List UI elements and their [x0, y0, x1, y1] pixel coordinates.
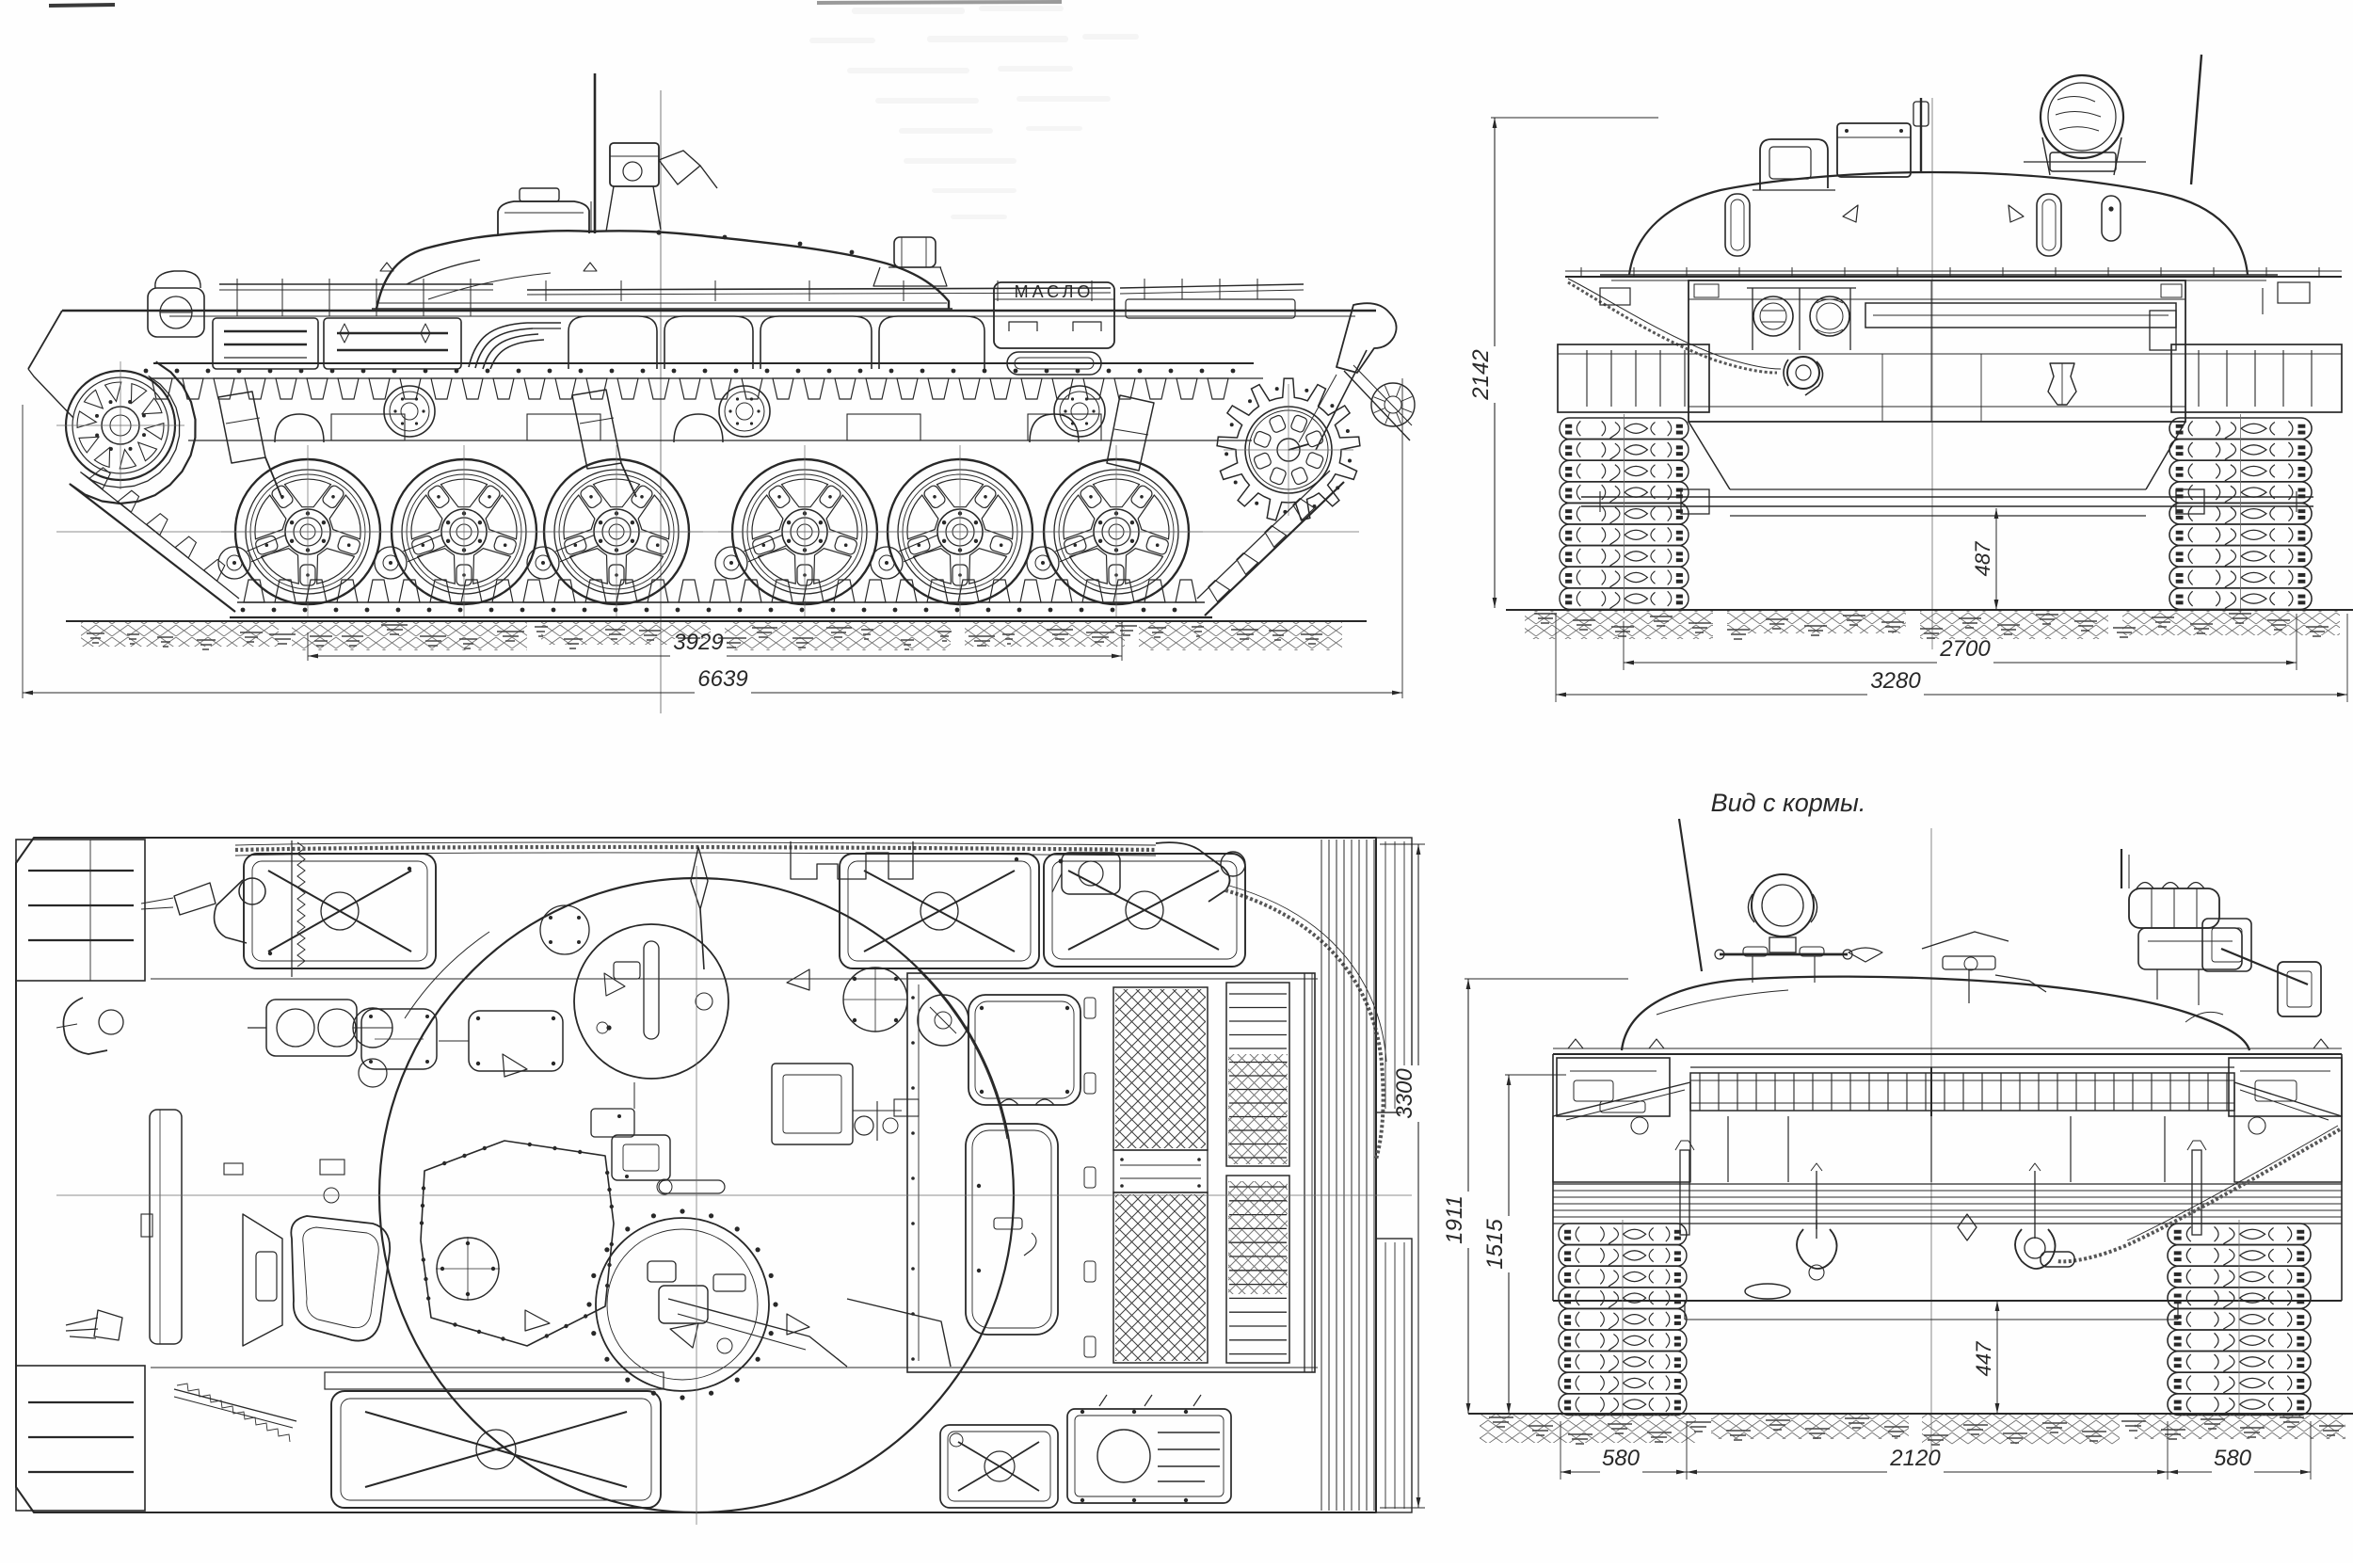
svg-text:3280: 3280 — [1870, 668, 1921, 694]
svg-text:487: 487 — [1971, 541, 1994, 576]
svg-text:МАСЛО: МАСЛО — [1015, 282, 1095, 301]
svg-text:580: 580 — [2214, 1446, 2252, 1471]
svg-text:Вид с кормы.: Вид с кормы. — [1711, 789, 1866, 817]
svg-text:2142: 2142 — [1468, 349, 1494, 400]
svg-text:2120: 2120 — [1889, 1446, 1941, 1471]
svg-text:580: 580 — [1602, 1446, 1641, 1471]
svg-text:1515: 1515 — [1482, 1219, 1508, 1270]
svg-text:1911: 1911 — [1442, 1195, 1467, 1244]
svg-text:447: 447 — [1972, 1341, 1995, 1376]
svg-text:3929: 3929 — [673, 630, 723, 655]
svg-text:2700: 2700 — [1939, 636, 1991, 662]
svg-text:6639: 6639 — [697, 666, 747, 692]
svg-text:3300: 3300 — [1392, 1068, 1417, 1119]
